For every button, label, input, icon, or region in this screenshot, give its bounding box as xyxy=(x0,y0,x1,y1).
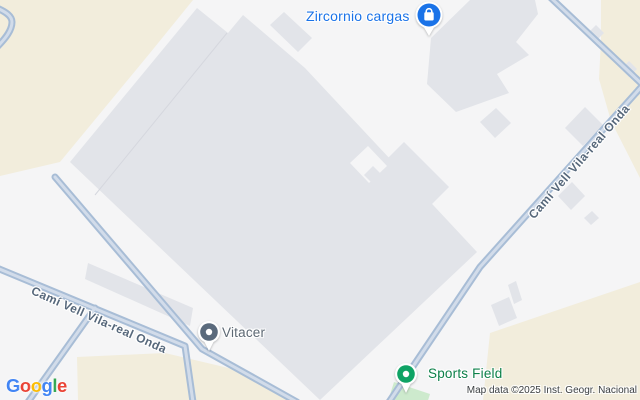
place-pin-zircornio[interactable] xyxy=(413,0,445,43)
poi-label-vitacer[interactable]: Vitacer xyxy=(222,325,265,340)
google-logo-letter: g xyxy=(42,375,53,396)
shopping-bag-pin-icon xyxy=(413,0,445,38)
sports-pin-icon xyxy=(393,361,419,395)
map-attribution: Map data ©2025 Inst. Geogr. Nacional xyxy=(467,385,637,396)
poi-label-sports-field[interactable]: Sports Field xyxy=(428,366,502,381)
google-logo-letter: G xyxy=(6,375,20,396)
place-pin-vitacer[interactable] xyxy=(196,319,222,358)
poi-label-zircornio-cargas[interactable]: Zircornio cargas xyxy=(306,8,410,24)
google-logo-letter: o xyxy=(20,375,31,396)
map-canvas[interactable]: Zircornio cargas Vitacer Sports Field Ca… xyxy=(0,0,640,400)
google-logo-letter: e xyxy=(57,375,67,396)
google-logo[interactable]: Google xyxy=(6,375,67,397)
place-pin-sports-field[interactable] xyxy=(393,361,419,400)
google-logo-letter: o xyxy=(31,375,42,396)
generic-place-pin-icon xyxy=(196,319,222,353)
